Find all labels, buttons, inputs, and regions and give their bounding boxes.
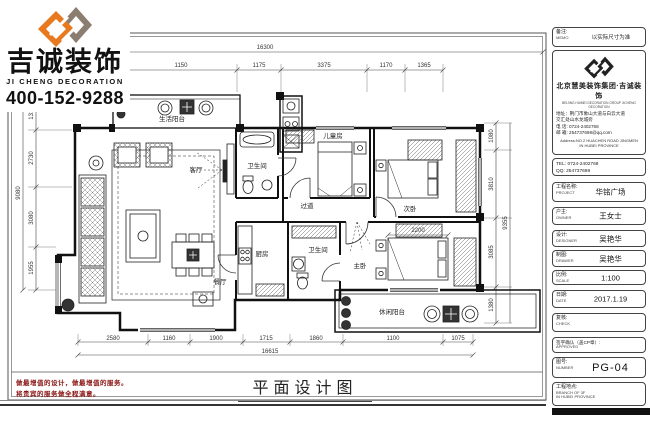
dim-left-4: 1955 bbox=[29, 261, 35, 275]
dim-top-4: 1170 bbox=[380, 63, 394, 69]
room-label-dining: 餐厅 bbox=[214, 277, 228, 286]
dim-top-1: 1150 bbox=[175, 63, 189, 69]
titleblock-approved: 签字确认（盖CP章）: APPROVED bbox=[552, 337, 646, 353]
living-room-furniture bbox=[62, 143, 234, 311]
room-label-master-bedroom: 主卧 bbox=[354, 261, 368, 270]
dim-top-5: 1365 bbox=[417, 63, 431, 69]
drawing-title: 平面设计图 bbox=[238, 374, 372, 402]
contact-tel: TEL: 0724-2402768 bbox=[556, 161, 642, 168]
project-value: 华铭广场 bbox=[579, 187, 642, 198]
dim-left-2: 2730 bbox=[29, 151, 35, 165]
dim-left-overall: 9080 bbox=[16, 186, 22, 200]
drawing-sheet: 16300 1150 1175 3375 1170 1365 2580 1160… bbox=[0, 0, 650, 433]
titleblock-scale: 比例: SCALE 1:100 bbox=[552, 270, 646, 285]
titleblock-logo-icon bbox=[582, 54, 616, 80]
owner-value: 王女士 bbox=[579, 211, 642, 222]
room-label-bath1: 卫生间 bbox=[247, 161, 267, 170]
room-label-kitchen: 厨房 bbox=[256, 249, 269, 258]
kitchen-fixtures bbox=[238, 226, 284, 296]
room-label-bath2: 卫生间 bbox=[308, 245, 328, 254]
dim-top-overall: 16300 bbox=[257, 45, 274, 51]
dim-right-overall: 9355 bbox=[503, 216, 509, 230]
dim-bottom-1: 2580 bbox=[106, 336, 120, 342]
company-email: 邮 箱: 254737698@qq.com bbox=[556, 130, 642, 136]
titleblock-bottom-bar bbox=[552, 408, 650, 415]
titleblock-memo: 备注: MEMO 以实际尺寸为准 bbox=[552, 27, 646, 47]
room-label-living: 客厅 bbox=[190, 165, 204, 174]
dim-bottom-3: 1900 bbox=[209, 336, 223, 342]
contact-qq: QQ: 254737698 bbox=[556, 168, 642, 175]
wall-piers bbox=[55, 92, 484, 314]
brand-logo-icon bbox=[34, 3, 96, 49]
titleblock-contact: TEL: 0724-2402768 QQ: 254737698 bbox=[552, 158, 646, 176]
dining-furniture bbox=[172, 234, 214, 276]
titleblock-site: 工程地点: BRANCH OF 3F IN HUBEI PROVINCE bbox=[552, 382, 646, 406]
dim-bottom-5: 1860 bbox=[309, 336, 323, 342]
slogan-line-1: 做最增值的设计，做最增值的服务。 bbox=[16, 378, 128, 389]
company-name-en: BEIJING HUIMEI DECORATION GROUP JICHENG … bbox=[556, 101, 642, 109]
dim-bottom-4: 1715 bbox=[259, 336, 273, 342]
dim-bottom-2: 1160 bbox=[163, 336, 177, 342]
site-line-2: IN HUBEI PROVINCE bbox=[556, 395, 642, 399]
date-value: 2017.1.19 bbox=[579, 295, 642, 304]
scale-value: 1:100 bbox=[579, 273, 642, 282]
brand-logo-block: 吉诚装饰 JI CHENG DECORATION 400-152-9288 bbox=[0, 0, 130, 112]
dim-right-1: 1080 bbox=[489, 129, 495, 143]
dim-bottom-overall: 16615 bbox=[262, 349, 279, 355]
drawer-value: 吴艳华 bbox=[579, 253, 642, 264]
dim-bottom-6: 1100 bbox=[387, 336, 401, 342]
approved-label-en: APPROVED bbox=[556, 345, 642, 349]
dim-right-3: 3085 bbox=[489, 245, 495, 259]
titleblock-drawer: 制图: DRAWER 吴艳华 bbox=[552, 250, 646, 267]
brand-name: 吉诚装饰 bbox=[0, 49, 130, 76]
titleblock-owner: 户主: OWNER 王女士 bbox=[552, 207, 646, 225]
brand-phone: 400-152-9288 bbox=[0, 88, 130, 109]
titleblock-company: 北京慧美装饰集团·吉诚装饰 BEIJING HUIMEI DECORATION … bbox=[552, 50, 646, 155]
check-label-en: CHECK bbox=[556, 322, 642, 326]
brand-name-en: JI CHENG DECORATION bbox=[0, 77, 130, 86]
dim-right-4: 1380 bbox=[489, 298, 495, 312]
number-value: PG-04 bbox=[579, 362, 642, 374]
room-label-service-balcony: 生活阳台 bbox=[159, 114, 185, 123]
room-label-second-bedroom: 次卧 bbox=[404, 204, 418, 213]
room-label-kids-bedroom: 儿童房 bbox=[323, 131, 343, 140]
dim-bottom-7: 1075 bbox=[451, 336, 465, 342]
titleblock-number: 图号: NUMBER PG-04 bbox=[552, 357, 646, 378]
master-bedroom-furniture bbox=[350, 222, 476, 286]
titleblock-check: 复核: CHECK bbox=[552, 313, 646, 332]
company-slogan: 做最增值的设计，做最增值的服务。 将贵宾的服务做全程满意。 bbox=[16, 378, 128, 401]
titleblock-project: 工程名称: PROJECT 华铭广场 bbox=[552, 182, 646, 202]
company-address-en-2: IN HUBEI PROVINCE bbox=[556, 143, 642, 148]
dim-top-3: 3375 bbox=[317, 63, 331, 69]
second-bedroom-furniture bbox=[376, 140, 476, 212]
memo-value: 以实际尺寸为准 bbox=[579, 33, 643, 41]
titleblock-date: 日期: DATE 2017.1.19 bbox=[552, 290, 646, 308]
slogan-line-2: 将贵宾的服务做全程满意。 bbox=[16, 389, 128, 400]
leisure-balcony-items bbox=[342, 297, 479, 330]
bottom-rule-thick bbox=[0, 404, 546, 406]
bathroom2-fixtures bbox=[292, 226, 336, 289]
furniture bbox=[62, 99, 478, 330]
titleblock-designer: 设计: DESIGNER 吴艳华 bbox=[552, 230, 646, 247]
designer-value: 吴艳华 bbox=[579, 233, 642, 244]
dim-right-2: 3810 bbox=[489, 177, 495, 191]
dim-left-3: 3080 bbox=[29, 211, 35, 225]
room-label-leisure-balcony: 休闲阳台 bbox=[379, 307, 405, 316]
company-name: 北京慧美装饰集团·吉诚装饰 bbox=[556, 81, 642, 101]
dim-top-2: 1175 bbox=[253, 63, 267, 69]
room-label-hall: 过道 bbox=[301, 201, 315, 210]
